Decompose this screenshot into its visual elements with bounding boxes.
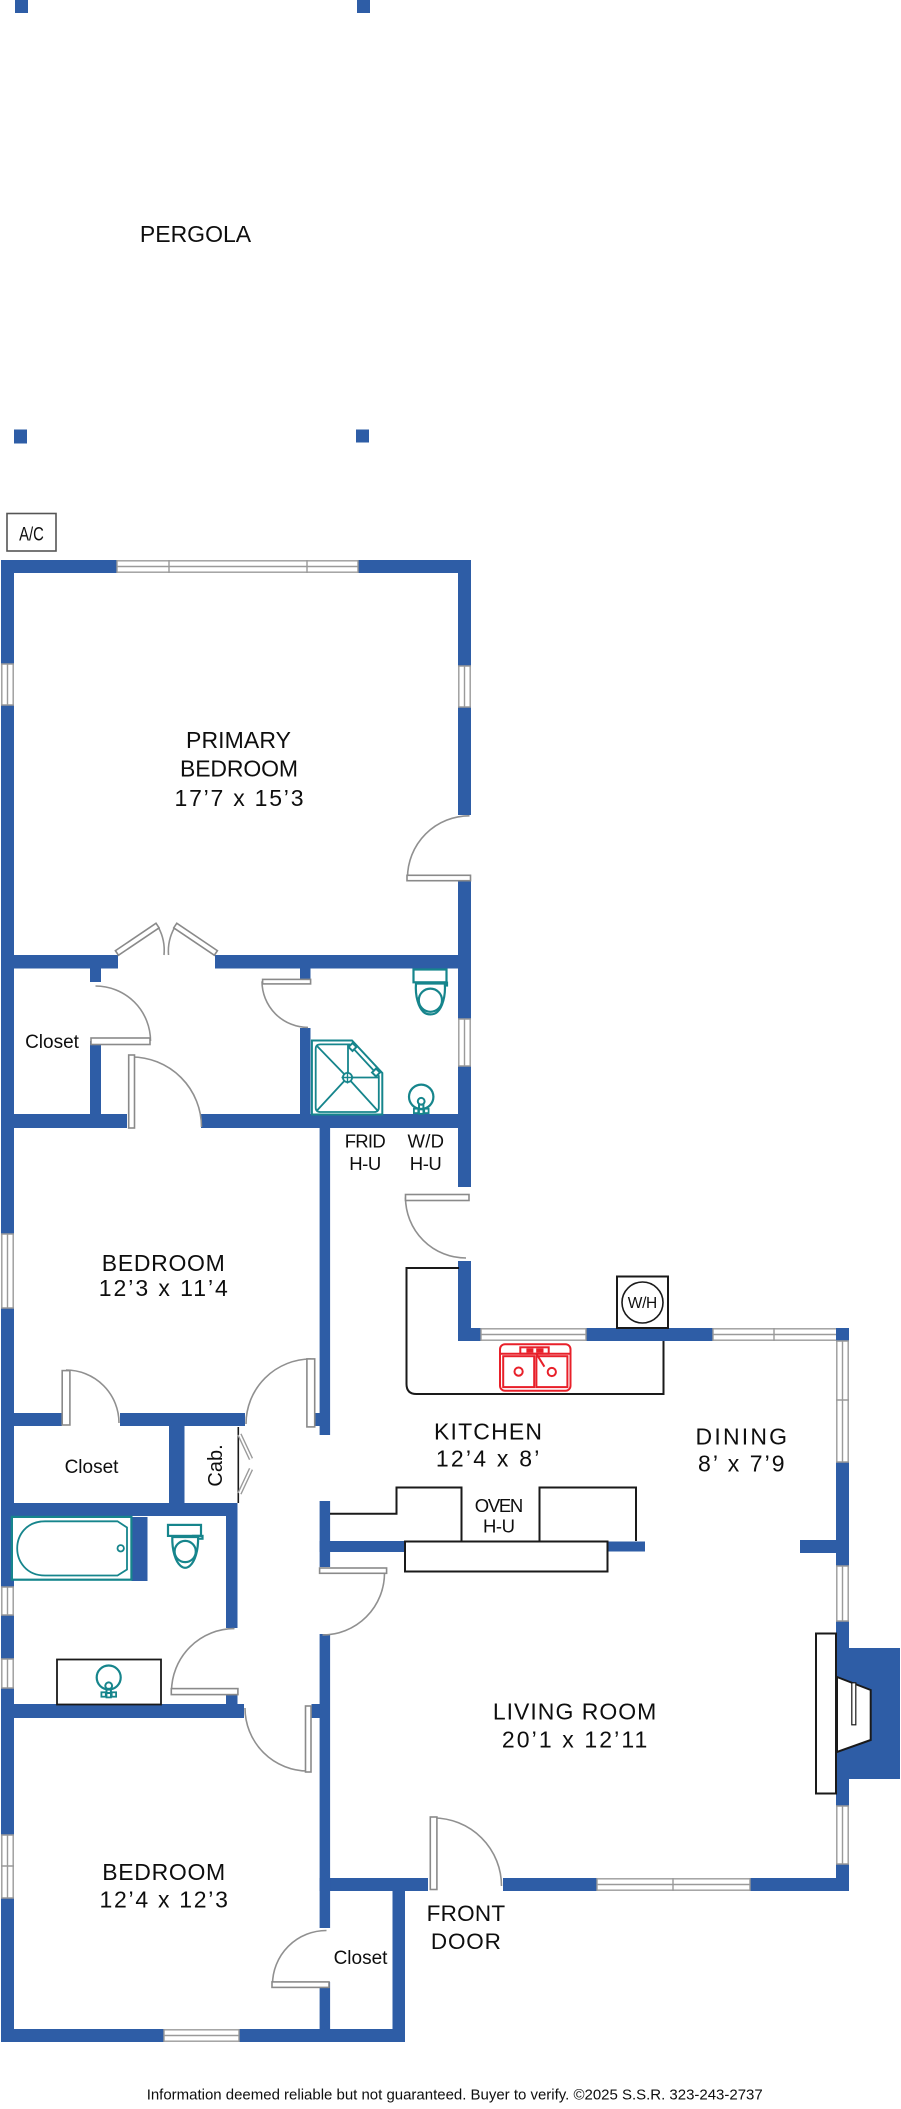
svg-text:12’4 x 12’3: 12’4 x 12’3 — [99, 1887, 228, 1913]
svg-text:Cab.: Cab. — [205, 1444, 227, 1486]
svg-text:Closet: Closet — [25, 1032, 80, 1053]
svg-text:OVEN: OVEN — [475, 1495, 524, 1516]
svg-text:LIVING ROOM: LIVING ROOM — [493, 1698, 657, 1724]
svg-text:17’7 x 15’3: 17’7 x 15’3 — [175, 785, 304, 811]
svg-text:BEDROOM: BEDROOM — [180, 755, 298, 781]
svg-text:DINING: DINING — [696, 1423, 788, 1449]
svg-text:H-U: H-U — [410, 1153, 442, 1174]
svg-text:FRONT: FRONT — [427, 1901, 506, 1926]
svg-text:W/D: W/D — [408, 1131, 445, 1152]
svg-text:12’3 x 11’4: 12’3 x 11’4 — [99, 1275, 228, 1301]
svg-text:FRID: FRID — [345, 1131, 386, 1152]
svg-text:Information deemed reliable bu: Information deemed reliable but not guar… — [147, 2087, 763, 2104]
svg-text:DOOR: DOOR — [431, 1929, 501, 1954]
svg-text:PRIMARY: PRIMARY — [186, 727, 291, 753]
svg-text:12’4 x 8’: 12’4 x 8’ — [436, 1446, 539, 1472]
svg-text:Closet: Closet — [334, 1948, 389, 1969]
svg-text:20’1 x 12’11: 20’1 x 12’11 — [502, 1726, 648, 1752]
svg-text:PERGOLA: PERGOLA — [140, 221, 252, 247]
svg-text:BEDROOM: BEDROOM — [102, 1859, 225, 1885]
svg-text:A/C: A/C — [19, 524, 44, 545]
svg-text:Closet: Closet — [65, 1457, 120, 1478]
svg-text:BEDROOM: BEDROOM — [102, 1250, 225, 1276]
svg-text:KITCHEN: KITCHEN — [434, 1419, 542, 1445]
svg-text:H-U: H-U — [483, 1516, 515, 1537]
svg-text:H-U: H-U — [349, 1153, 381, 1174]
svg-text:8’ x 7’9: 8’ x 7’9 — [698, 1451, 785, 1477]
svg-text:W/H: W/H — [628, 1295, 658, 1312]
